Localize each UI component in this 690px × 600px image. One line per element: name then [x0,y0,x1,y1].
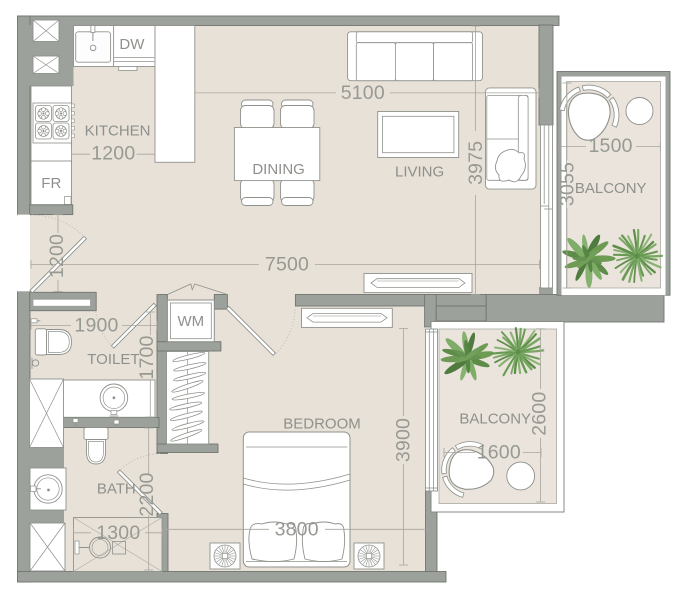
svg-text:2200: 2200 [136,472,158,516]
svg-text:1200: 1200 [91,142,135,164]
svg-text:1900: 1900 [74,314,118,336]
svg-text:1200: 1200 [46,234,68,278]
svg-text:LIVING: LIVING [395,163,444,180]
svg-text:1500: 1500 [589,135,633,157]
svg-text:1700: 1700 [136,335,158,379]
svg-text:3800: 3800 [275,518,319,540]
svg-text:BEDROOM: BEDROOM [283,416,361,433]
svg-text:5100: 5100 [341,82,385,104]
svg-text:3900: 3900 [392,418,414,462]
svg-text:FR: FR [41,175,61,192]
svg-text:7500: 7500 [265,253,309,275]
svg-text:3055: 3055 [556,162,578,206]
svg-text:BALCONY: BALCONY [459,410,531,427]
svg-text:1300: 1300 [96,522,140,544]
svg-text:BATH: BATH [97,481,136,498]
svg-text:2600: 2600 [528,392,550,436]
svg-text:1600: 1600 [477,442,521,464]
svg-text:BALCONY: BALCONY [575,180,647,197]
svg-text:TOILET: TOILET [87,351,139,368]
svg-text:3975: 3975 [465,141,487,185]
svg-text:WM: WM [177,313,204,330]
svg-text:KITCHEN: KITCHEN [85,123,151,140]
svg-text:DW: DW [119,36,145,53]
svg-text:DINING: DINING [252,161,305,178]
